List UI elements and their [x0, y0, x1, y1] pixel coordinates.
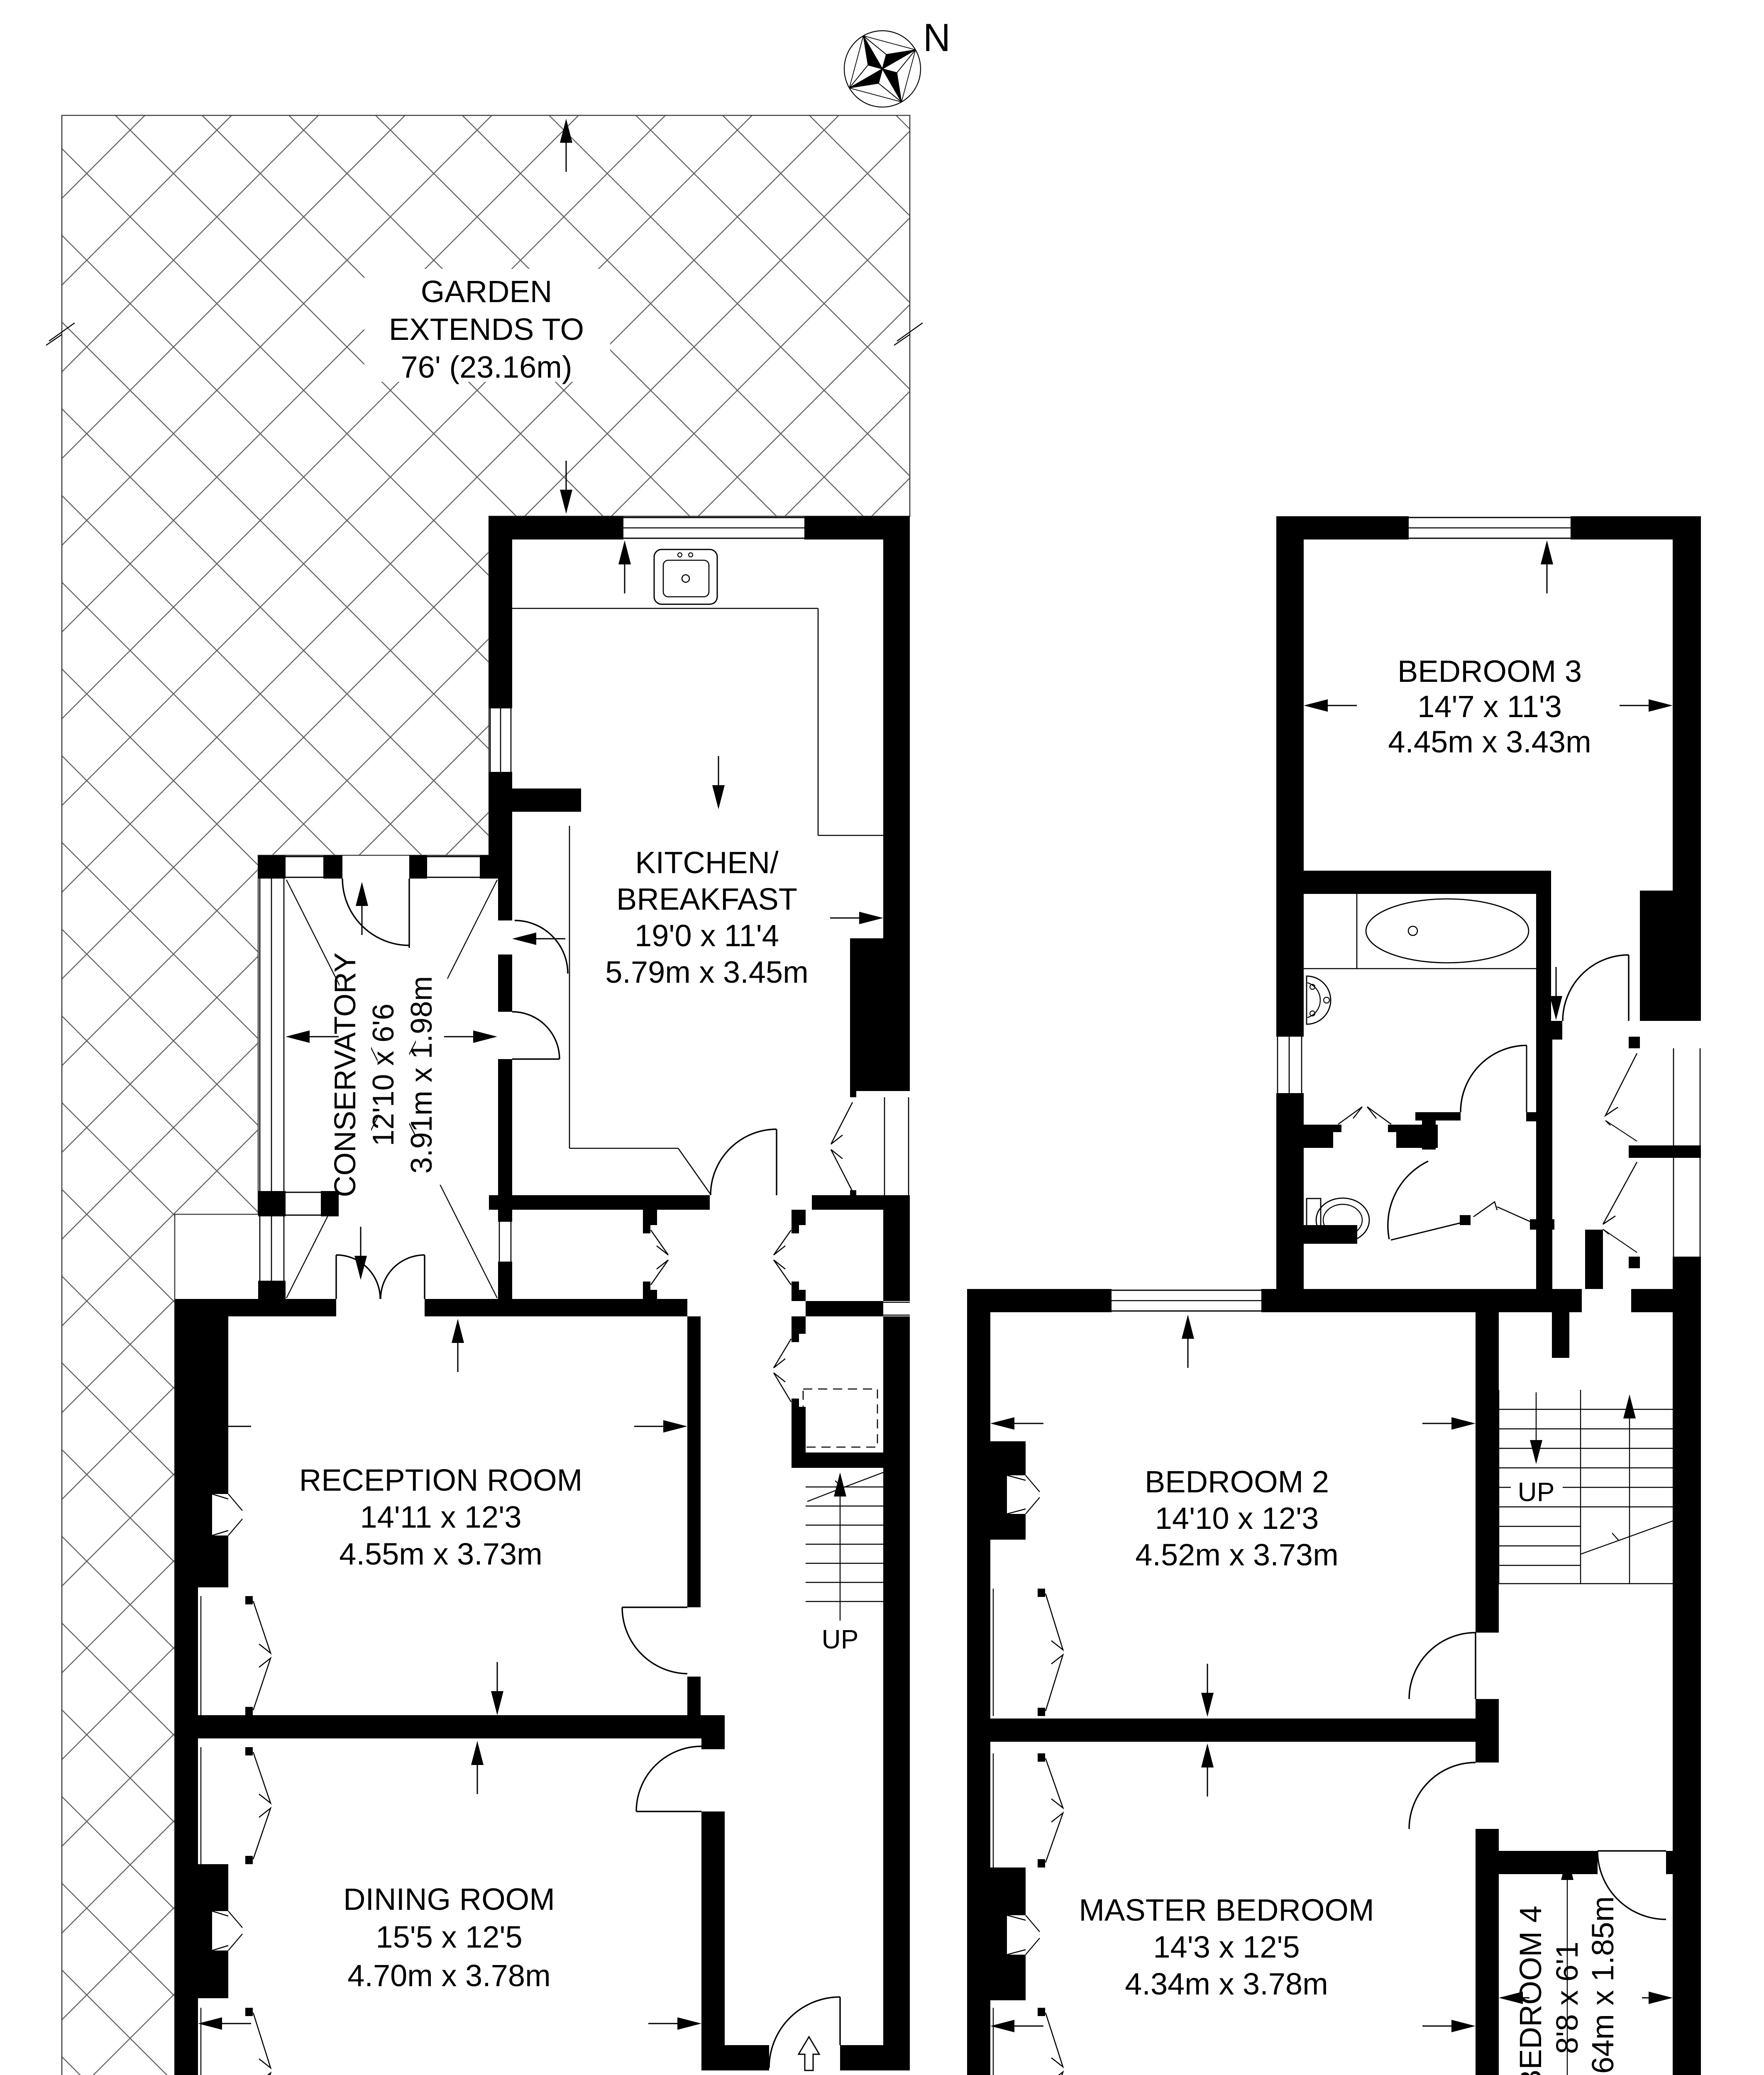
svg-text:3.91m x 1.98m: 3.91m x 1.98m — [405, 976, 438, 1174]
svg-text:GARDEN: GARDEN — [421, 274, 552, 309]
svg-text:4.70m x 3.78m: 4.70m x 3.78m — [347, 1958, 550, 1993]
svg-text:BEDROOM 2: BEDROOM 2 — [1145, 1465, 1329, 1499]
svg-text:4.55m x 3.73m: 4.55m x 3.73m — [339, 1537, 542, 1571]
svg-text:19'0 x 11'4: 19'0 x 11'4 — [635, 918, 779, 953]
svg-text:15'5 x 12'5: 15'5 x 12'5 — [376, 1920, 522, 1954]
svg-text:14'11 x 12'3: 14'11 x 12'3 — [360, 1500, 522, 1534]
svg-text:76' (23.16m): 76' (23.16m) — [401, 350, 572, 384]
svg-text:BEDROOM 4: BEDROOM 4 — [1513, 1906, 1548, 2075]
svg-text:EXTENDS TO: EXTENDS TO — [389, 312, 584, 347]
svg-text:UP: UP — [822, 1624, 859, 1654]
svg-text:8'8 x 6'1: 8'8 x 6'1 — [1550, 1942, 1584, 2054]
svg-text:CONSERVATORY: CONSERVATORY — [329, 952, 362, 1197]
svg-text:2.64m x 1.85m: 2.64m x 1.85m — [1586, 1896, 1620, 2075]
svg-text:RECEPTION ROOM: RECEPTION ROOM — [299, 1463, 582, 1497]
svg-text:12'10 x 6'6: 12'10 x 6'6 — [367, 1003, 400, 1146]
svg-text:BREAKFAST: BREAKFAST — [616, 882, 797, 916]
svg-text:5.79m x 3.45m: 5.79m x 3.45m — [605, 955, 808, 989]
svg-text:14'3 x 12'5: 14'3 x 12'5 — [1153, 1930, 1300, 1964]
svg-text:DINING ROOM: DINING ROOM — [343, 1882, 555, 1916]
svg-text:N: N — [923, 16, 950, 60]
svg-text:UP: UP — [1518, 1477, 1555, 1507]
svg-text:14'10 x 12'3: 14'10 x 12'3 — [1155, 1501, 1319, 1535]
svg-text:4.45m x 3.43m: 4.45m x 3.43m — [1388, 725, 1591, 759]
svg-text:KITCHEN/: KITCHEN/ — [635, 845, 779, 880]
svg-text:4.52m x 3.73m: 4.52m x 3.73m — [1135, 1538, 1338, 1572]
svg-text:4.34m x 3.78m: 4.34m x 3.78m — [1125, 1967, 1328, 2001]
svg-text:MASTER BEDROOM: MASTER BEDROOM — [1079, 1893, 1374, 1927]
svg-text:BEDROOM 3: BEDROOM 3 — [1398, 654, 1582, 688]
svg-text:14'7 x 11'3: 14'7 x 11'3 — [1417, 689, 1562, 724]
